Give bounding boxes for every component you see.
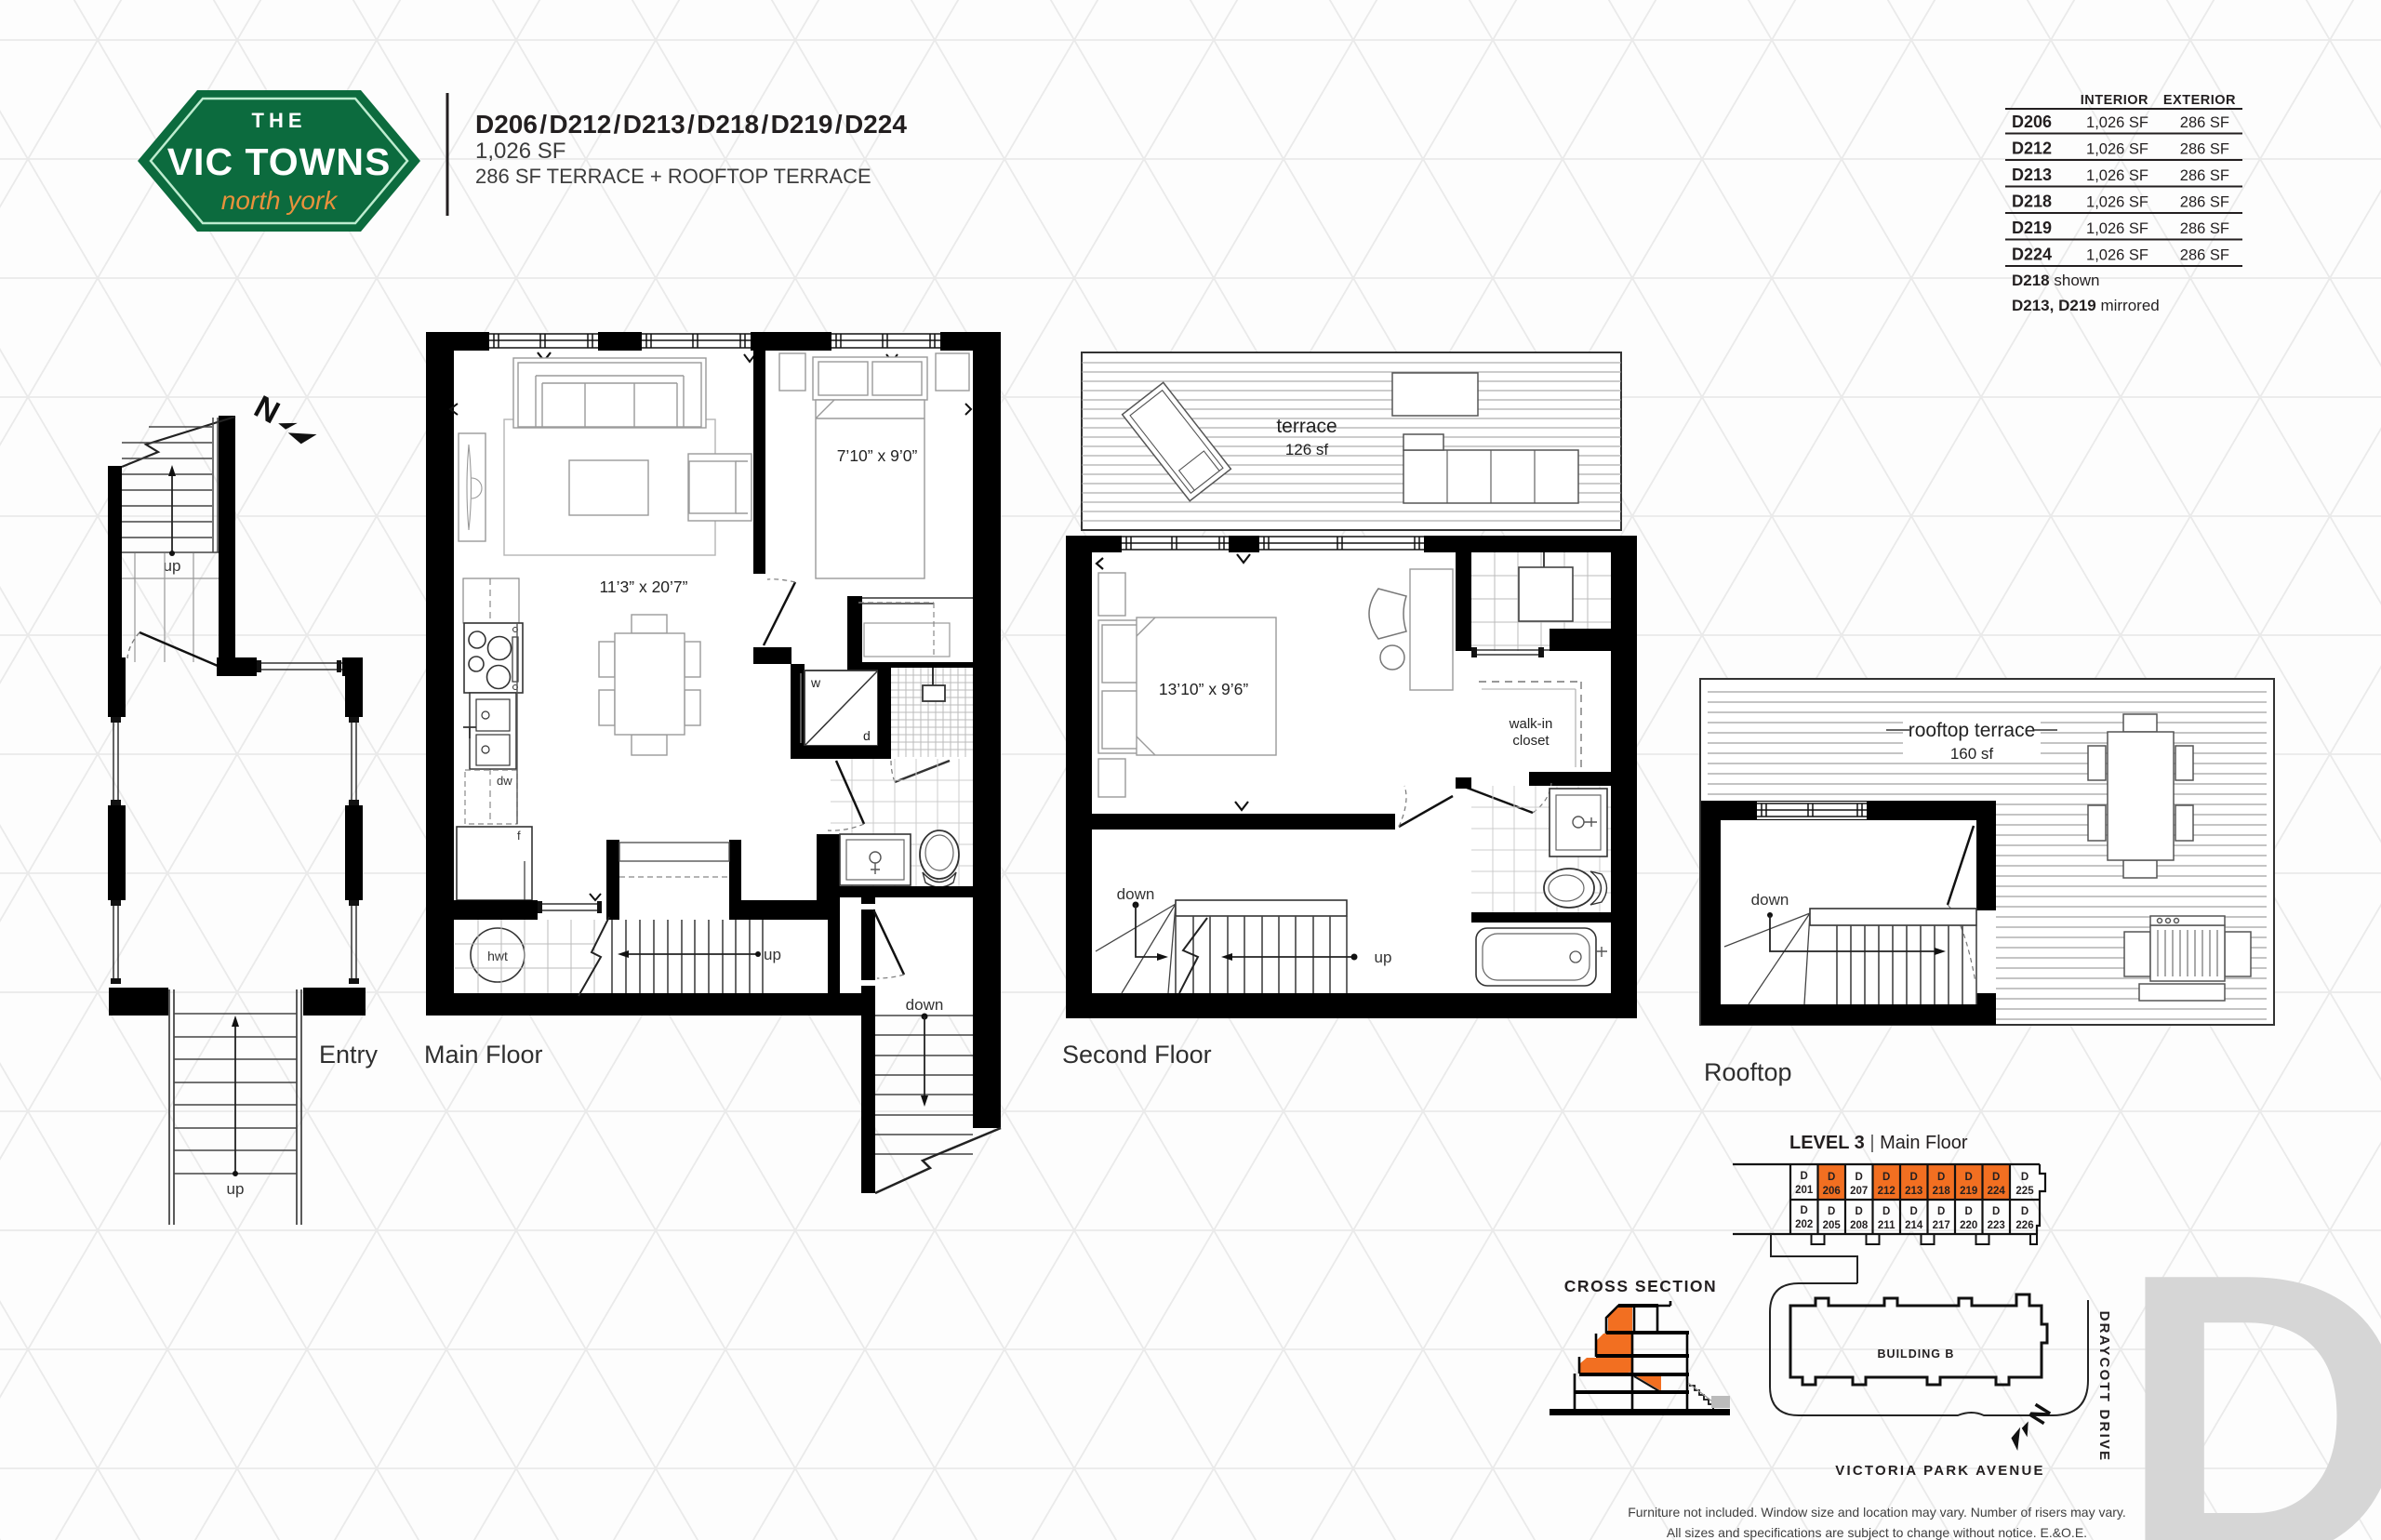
svg-text:D213: D213 [2012,166,2052,184]
svg-text:D218 shown: D218 shown [2012,272,2100,289]
svg-text:D218: D218 [2012,192,2052,211]
svg-text:225: 225 [2015,1186,2034,1197]
svg-text:D: D [1882,1206,1890,1217]
svg-text:208: 208 [1850,1220,1869,1231]
svg-text:Main Floor: Main Floor [424,1041,543,1069]
svg-text:DRAYCOTT DRIVE: DRAYCOTT DRIVE [2096,1311,2112,1463]
svg-text:up: up [164,557,181,575]
svg-text:north york: north york [221,186,339,215]
svg-text:286 SF TERRACE + ROOFTOP TERRA: 286 SF TERRACE + ROOFTOP TERRACE [475,165,871,188]
svg-text:D: D [1910,1206,1918,1217]
svg-text:D219: D219 [2012,219,2052,237]
svg-text:up: up [1375,949,1392,966]
svg-text:up: up [227,1180,245,1198]
svg-text:terrace: terrace [1276,416,1337,437]
svg-text:1,026 SF: 1,026 SF [2086,167,2148,184]
svg-text:286 SF: 286 SF [2180,114,2229,131]
svg-text:CROSS SECTION: CROSS SECTION [1564,1277,1717,1295]
svg-text:VIC TOWNS: VIC TOWNS [167,140,392,183]
svg-text:11’3” x 20’7”: 11’3” x 20’7” [599,577,687,596]
svg-text:1,026 SF: 1,026 SF [2086,141,2148,158]
svg-text:126 sf: 126 sf [1285,441,1329,458]
svg-text:D: D [1828,1206,1835,1217]
svg-text:217: 217 [1933,1220,1950,1231]
svg-text:D: D [1937,1206,1945,1217]
svg-text:220: 220 [1960,1220,1977,1231]
svg-text:D: D [1882,1172,1890,1183]
svg-text:Second Floor: Second Floor [1062,1041,1212,1069]
svg-text:dw: dw [497,774,512,788]
svg-text:214: 214 [1905,1220,1923,1231]
svg-text:hwt: hwt [487,949,508,963]
svg-text:D: D [2021,1172,2029,1183]
svg-text:213: 213 [1905,1186,1922,1197]
svg-text:down: down [1117,885,1155,903]
svg-text:1,026 SF: 1,026 SF [2086,220,2148,237]
svg-text:D212: D212 [2012,139,2052,158]
svg-text:D: D [1992,1172,2000,1183]
svg-text:D: D [2118,1189,2381,1540]
svg-text:286 SF: 286 SF [2180,194,2229,211]
svg-text:Rooftop: Rooftop [1704,1058,1792,1086]
svg-text:D: D [1910,1172,1918,1183]
svg-text:201: 201 [1795,1185,1814,1196]
svg-text:206: 206 [1823,1186,1841,1197]
svg-text:d: d [863,728,871,743]
svg-text:223: 223 [1988,1220,2005,1231]
svg-text:D: D [1965,1172,1973,1183]
svg-text:D213, D219 mirrored: D213, D219 mirrored [2012,297,2160,314]
svg-text:THE: THE [252,109,307,132]
svg-text:up: up [764,946,781,963]
svg-text:D206: D206 [2012,113,2052,131]
svg-text:closet: closet [1512,733,1550,749]
svg-text:Entry: Entry [319,1041,379,1069]
svg-text:VICTORIA PARK AVENUE: VICTORIA PARK AVENUE [1835,1463,2044,1479]
svg-text:1,026 SF: 1,026 SF [2086,247,2148,264]
svg-text:286 SF: 286 SF [2180,220,2229,237]
svg-text:down: down [906,996,944,1014]
svg-text:219: 219 [1960,1186,1977,1197]
svg-text:1,026 SF: 1,026 SF [475,139,565,164]
svg-text:D206 / D212 / D213 / D218 / D2: D206 / D212 / D213 / D218 / D219 / D224 [475,110,907,139]
svg-text:D: D [1992,1206,2000,1217]
svg-text:f: f [517,829,521,843]
svg-text:INTERIOR: INTERIOR [2081,93,2148,108]
svg-text:286 SF: 286 SF [2180,247,2229,264]
svg-text:7’10” x 9’0”: 7’10” x 9’0” [837,446,918,465]
svg-text:All sizes and specifications a: All sizes and specifications are subject… [1667,1525,2087,1540]
svg-text:212: 212 [1878,1186,1895,1197]
svg-text:BUILDING B: BUILDING B [1878,1347,1955,1361]
svg-text:202: 202 [1795,1219,1813,1230]
svg-text:D: D [1856,1206,1863,1217]
svg-text:down: down [1751,891,1789,909]
svg-text:205: 205 [1823,1220,1842,1231]
svg-text:D: D [1965,1206,1973,1217]
svg-text:13’10” x 9’6”: 13’10” x 9’6” [1159,680,1248,698]
svg-text:walk-in: walk-in [1509,716,1553,732]
svg-text:w: w [810,675,821,690]
svg-text:1,026 SF: 1,026 SF [2086,194,2148,211]
svg-text:218: 218 [1933,1186,1951,1197]
svg-text:EXTERIOR: EXTERIOR [2163,93,2236,108]
svg-text:207: 207 [1850,1186,1868,1197]
svg-text:D: D [1801,1205,1808,1216]
svg-text:1,026 SF: 1,026 SF [2086,114,2148,131]
svg-text:160 sf: 160 sf [1950,745,1994,763]
svg-text:286 SF: 286 SF [2180,141,2229,158]
svg-text:211: 211 [1878,1220,1895,1231]
svg-text:LEVEL 3 | Main Floor: LEVEL 3 | Main Floor [1789,1133,1968,1153]
svg-text:Furniture not included. Window: Furniture not included. Window size and … [1628,1505,2126,1520]
svg-text:D224: D224 [2012,246,2052,264]
svg-text:D: D [1828,1172,1835,1183]
svg-text:226: 226 [2015,1220,2033,1231]
svg-text:D: D [1856,1172,1863,1183]
svg-text:D: D [1801,1171,1808,1182]
svg-text:224: 224 [1988,1186,2006,1197]
svg-text:D: D [2021,1206,2029,1217]
svg-text:286 SF: 286 SF [2180,167,2229,184]
svg-text:D: D [1937,1172,1945,1183]
svg-text:rooftop terrace: rooftop terrace [1909,720,2036,741]
